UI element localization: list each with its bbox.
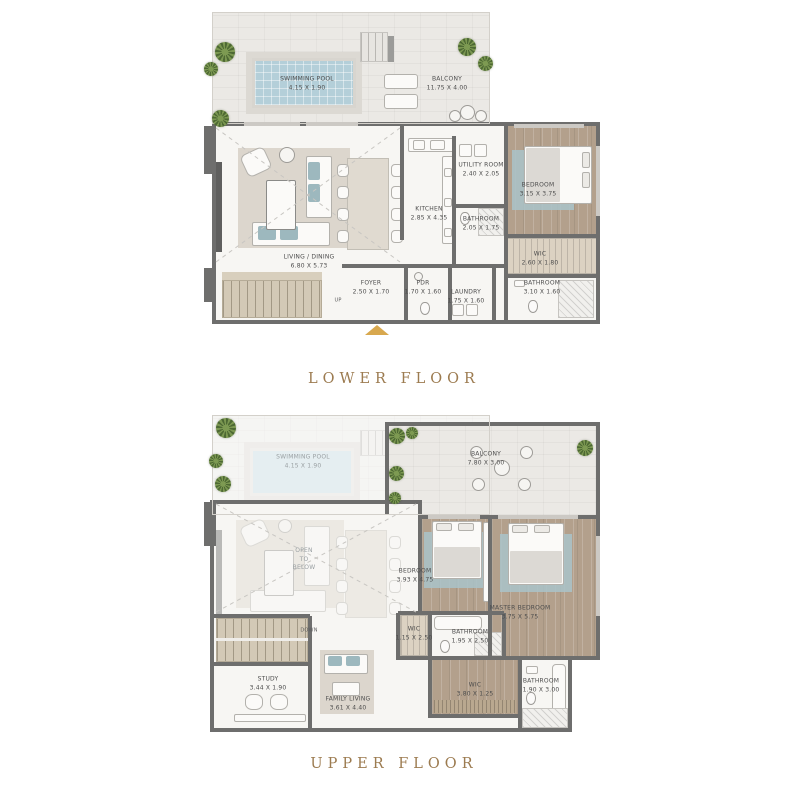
toilet — [440, 640, 450, 653]
study-chair — [245, 694, 263, 710]
room-label-family-living: FAMILY LIVING 3.61 X 4.40 — [326, 695, 371, 712]
bed-blanket — [434, 547, 480, 577]
room-dims: 1.95 X 2.50 — [452, 637, 489, 646]
dining-chair — [337, 186, 349, 199]
room-name: BEDROOM — [397, 567, 434, 576]
room-name: MASTER BEDROOM — [490, 604, 551, 613]
room-dims: 3.15 X 3.75 — [520, 190, 557, 199]
room-label-swimming-pool: SWIMMING POOL 4.15 X 1.90 — [280, 75, 334, 92]
room-name: SWIMMING POOL — [276, 453, 330, 462]
plant-icon — [389, 428, 405, 444]
washer-icon — [459, 144, 472, 157]
bed-pillow — [458, 523, 474, 531]
terrace-wall-stub — [388, 36, 394, 62]
sofa-cushion — [308, 184, 320, 202]
tv-unit — [216, 162, 222, 252]
room-label-balcony: BALCONY 11.75 X 4.00 — [427, 75, 468, 92]
plant-icon — [209, 454, 223, 468]
stairs-handrail — [216, 638, 308, 641]
lower-floor-title: LOWER FLOOR — [308, 371, 480, 387]
room-label-kitchen: KITCHEN 2.85 X 4.35 — [411, 205, 448, 222]
dining-table — [347, 158, 389, 250]
study-desk — [234, 714, 306, 722]
balcony-chair — [518, 478, 531, 491]
main-floor-upper — [214, 504, 418, 728]
room-name: BATHROOM — [463, 215, 500, 224]
room-name: BALCONY — [468, 450, 505, 459]
dining-chair — [391, 230, 403, 243]
washer-icon — [474, 144, 487, 157]
room-dims: 3.10 X 1.60 — [524, 288, 561, 297]
room-dims: 1.90 X 3.00 — [523, 686, 560, 695]
room-name: SWIMMING POOL — [280, 75, 334, 84]
window — [306, 122, 358, 126]
bed-pillow — [436, 523, 452, 531]
room-name: WIC — [396, 625, 433, 634]
wall-pillar — [204, 268, 216, 302]
room-dims: 2.85 X 4.35 — [411, 214, 448, 223]
sofa-cushion — [328, 656, 342, 666]
room-label-study: STUDY 3.44 X 1.90 — [250, 675, 287, 692]
room-label-wic-vertical: WIC 1.15 X 2.50 — [396, 625, 433, 642]
window — [596, 536, 600, 616]
bed-blanket — [510, 551, 562, 583]
bed-pillow — [512, 525, 528, 533]
room-name: UTILITY ROOM — [458, 161, 503, 170]
room-dims: 3.75 X 5.75 — [490, 613, 551, 622]
sun-lounger — [384, 74, 418, 89]
plant-icon — [204, 62, 218, 76]
room-name: WIC — [522, 250, 559, 259]
room-label-bedroom: BEDROOM 3.15 X 3.75 — [520, 181, 557, 198]
room-name: BEDROOM — [520, 181, 557, 190]
dining-chair — [337, 164, 349, 177]
plant-icon — [577, 440, 593, 456]
plant-icon — [389, 466, 404, 481]
room-dims: 2.60 X 1.80 — [522, 259, 559, 268]
dining-chair — [391, 208, 403, 221]
stairs-lower — [222, 280, 322, 318]
room-dims: 1.15 X 2.50 — [396, 634, 433, 643]
room-label-bathroom-right: BATHROOM 3.10 X 1.60 — [524, 279, 561, 296]
room-label-wic: WIC 2.60 X 1.80 — [522, 250, 559, 267]
room-label-living-dining: LIVING / DINING 6.80 X 5.73 — [284, 253, 335, 270]
room-label-pdr: PDR 1.70 X 1.60 — [405, 279, 442, 296]
bed-pillow — [582, 152, 590, 168]
room-label-bathroom-upper-right: BATHROOM 1.90 X 3.00 — [523, 677, 560, 694]
toilet — [420, 302, 430, 315]
room-label-wic-upper: WIC 3.80 X 1.25 — [457, 681, 494, 698]
room-dims: 1.70 X 1.60 — [405, 288, 442, 297]
room-label-foyer: FOYER 2.50 X 1.70 — [353, 279, 390, 296]
wall-pillar — [204, 126, 216, 174]
plant-icon — [389, 492, 401, 504]
floor-plan-canvas: SWIMMING POOL 4.15 X 1.90 BALCONY 11.75 … — [0, 0, 800, 800]
sofa-cushion — [308, 162, 320, 180]
plant-icon — [406, 427, 418, 439]
shower — [558, 280, 594, 318]
window — [428, 515, 480, 519]
side-table — [279, 147, 295, 163]
room-label-master-bedroom: MASTER BEDROOM 3.75 X 5.75 — [490, 604, 551, 621]
kitchen-hob — [430, 140, 445, 150]
room-label-bathroom-upper-mid: BATHROOM 1.95 X 2.50 — [452, 628, 489, 645]
balcony-chair — [475, 110, 487, 122]
room-label-ghost-pool: SWIMMING POOL 4.15 X 1.90 — [276, 453, 330, 470]
room-dims: 2.50 X 1.70 — [353, 288, 390, 297]
shower — [522, 708, 568, 728]
room-name: LIVING / DINING — [284, 253, 335, 262]
room-dims: 11.75 X 4.00 — [427, 84, 468, 93]
balcony-table — [460, 105, 475, 120]
stairs-up-label: UP — [334, 297, 341, 304]
room-name: BATHROOM — [524, 279, 561, 288]
bed-pillow — [582, 172, 590, 188]
balcony-upper — [387, 424, 598, 515]
kitchen-appliance — [444, 168, 452, 177]
plant-icon — [215, 42, 235, 62]
room-name: BALCONY — [427, 75, 468, 84]
dining-chair — [391, 186, 403, 199]
room-label-bedroom-upper: BEDROOM 3.93 X 4.75 — [397, 567, 434, 584]
stairs-landing — [222, 272, 322, 280]
room-dims: 2.05 X 1.75 — [463, 224, 500, 233]
room-dims: 2.40 X 2.05 — [458, 170, 503, 179]
room-dims: 3.44 X 1.90 — [250, 684, 287, 693]
room-name: FAMILY LIVING — [326, 695, 371, 704]
washer-icon — [466, 304, 478, 316]
window — [514, 124, 584, 128]
coffee-table — [266, 180, 296, 230]
sofa-cushion — [346, 656, 360, 666]
balcony-chair — [520, 446, 533, 459]
room-name: LAUNDRY — [448, 288, 485, 297]
window — [596, 146, 600, 216]
room-dims: 7.80 X 3.00 — [468, 459, 505, 468]
room-name: FOYER — [353, 279, 390, 288]
room-name: WIC — [457, 681, 494, 690]
kitchen-sink — [413, 140, 425, 150]
room-label-bathroom-mid: BATHROOM 2.05 X 1.75 — [463, 215, 500, 232]
plant-icon — [216, 418, 236, 438]
study-chair — [270, 694, 288, 710]
upper-floor-title: UPPER FLOOR — [310, 756, 477, 772]
room-dims: 6.80 X 5.73 — [284, 262, 335, 271]
window — [498, 515, 578, 519]
room-label-balcony-upper: BALCONY 7.80 X 3.00 — [468, 450, 505, 467]
open-to-below-label: OPEN TO BELOW — [293, 547, 316, 573]
room-name: BATHROOM — [452, 628, 489, 637]
stairs-down-label: DOWN — [300, 627, 317, 634]
room-name: STUDY — [250, 675, 287, 684]
bed-pillow — [534, 525, 550, 533]
room-name: KITCHEN — [411, 205, 448, 214]
dining-chair — [337, 230, 349, 243]
washer-icon — [452, 304, 464, 316]
room-dims: 3.61 X 4.40 — [326, 704, 371, 713]
wall-pillar — [204, 502, 216, 546]
entrance-arrow-icon — [365, 325, 389, 335]
plant-icon — [458, 38, 476, 56]
window — [244, 122, 300, 126]
room-name: BATHROOM — [523, 677, 560, 686]
kitchen-appliance — [444, 228, 452, 237]
plant-icon — [215, 476, 231, 492]
room-dims: 1.75 X 1.60 — [448, 297, 485, 306]
room-dims: 3.80 X 1.25 — [457, 690, 494, 699]
sink — [526, 666, 538, 674]
sun-lounger — [384, 94, 418, 109]
toilet — [528, 300, 538, 313]
room-label-utility-room: UTILITY ROOM 2.40 X 2.05 — [458, 161, 503, 178]
room-dims: 4.15 X 1.90 — [280, 84, 334, 93]
dining-chair — [337, 208, 349, 221]
wic-carpet — [434, 700, 516, 713]
plant-icon — [478, 56, 493, 71]
dining-chair — [391, 164, 403, 177]
wardrobe-unit — [483, 522, 490, 602]
room-dims: 4.15 X 1.90 — [276, 462, 330, 471]
room-dims: 3.93 X 4.75 — [397, 576, 434, 585]
room-name: PDR — [405, 279, 442, 288]
terrace-steps — [360, 32, 388, 62]
plant-icon — [212, 110, 229, 127]
tv-console — [332, 682, 360, 696]
balcony-chair — [472, 478, 485, 491]
room-label-laundry: LAUNDRY 1.75 X 1.60 — [448, 288, 485, 305]
